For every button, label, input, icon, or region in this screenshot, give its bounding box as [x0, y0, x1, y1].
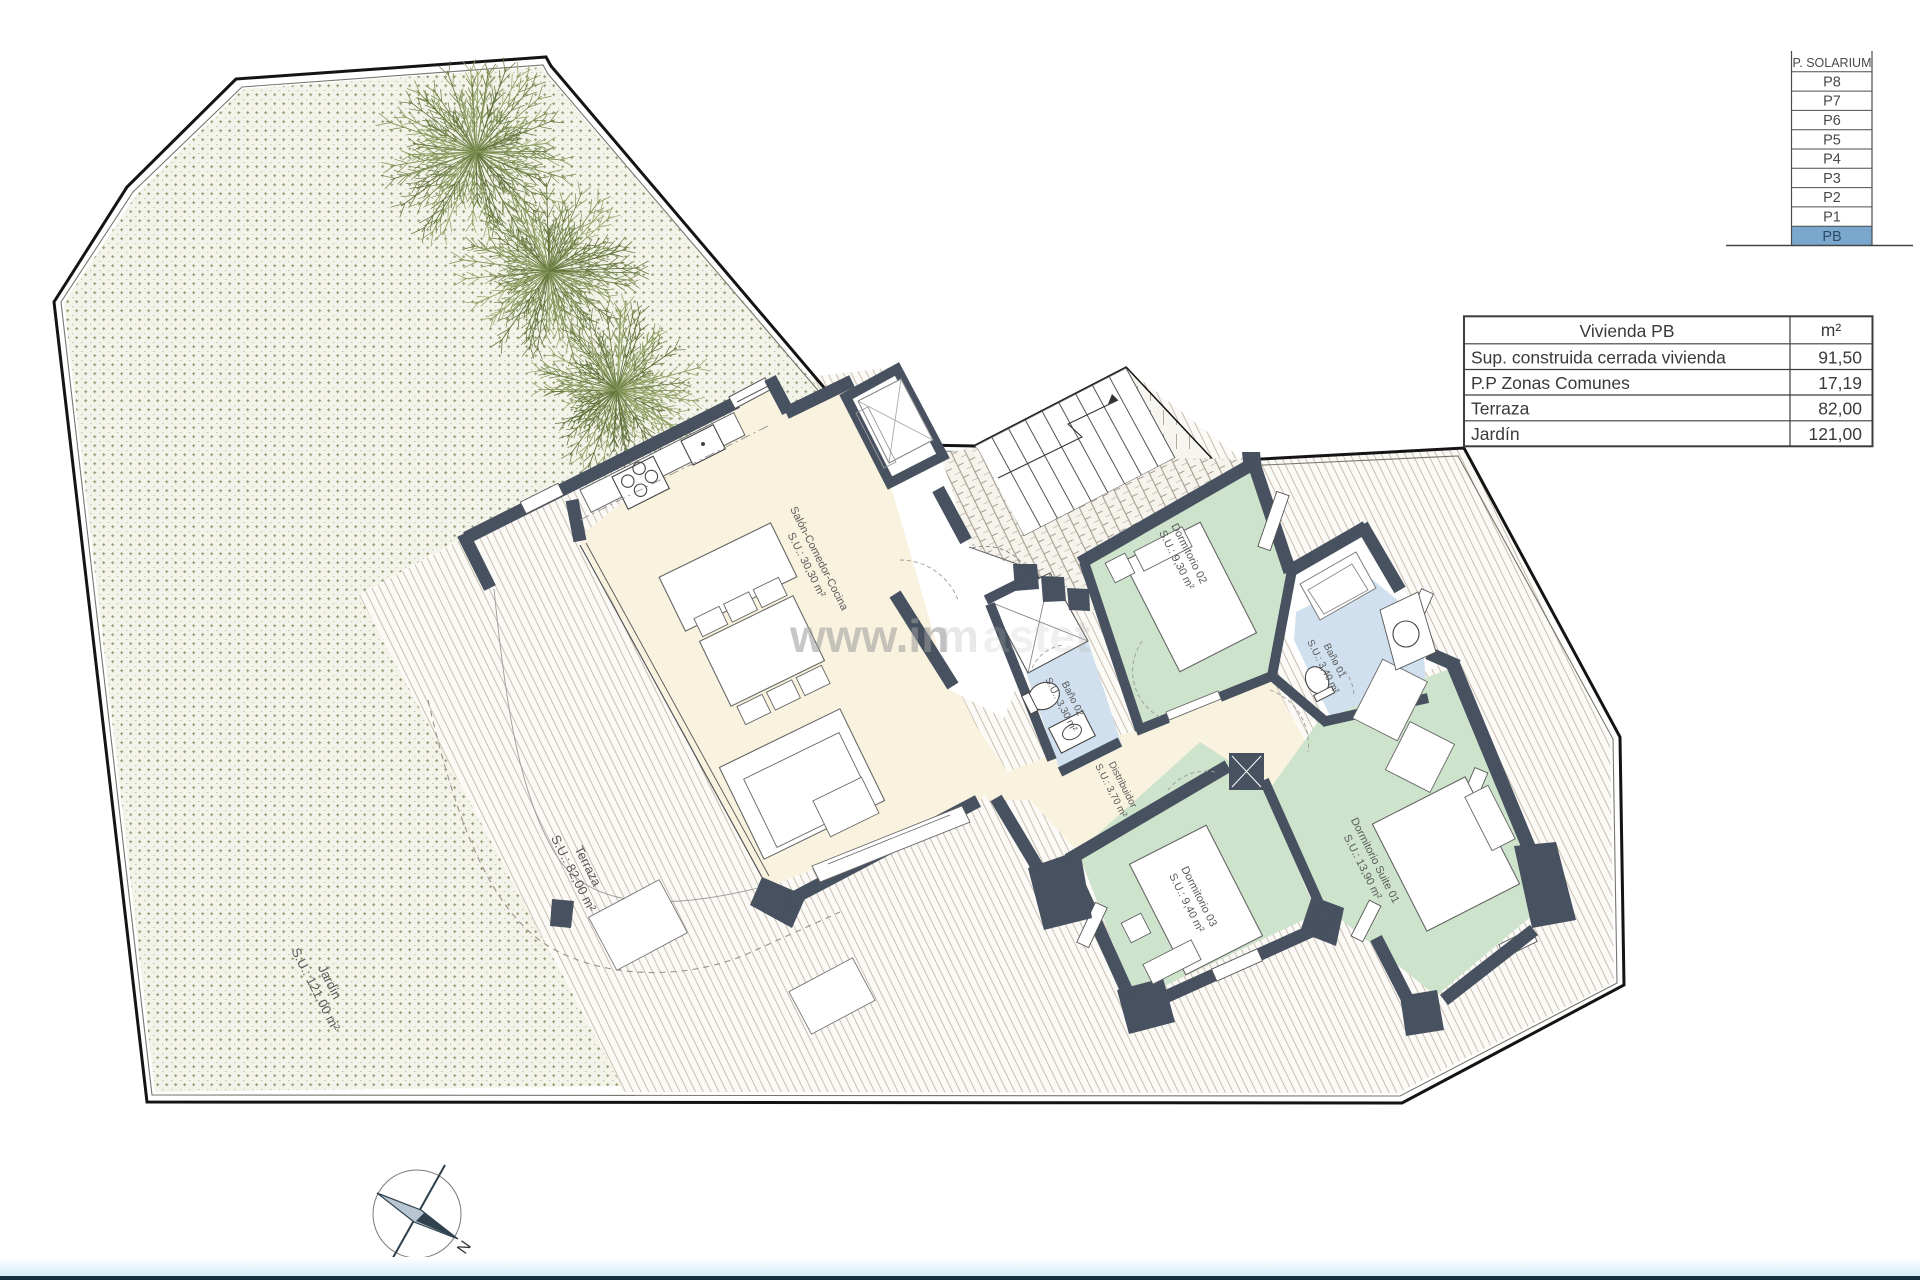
svg-text:Sup. construida cerrada vivien: Sup. construida cerrada vivienda: [1471, 348, 1726, 368]
svg-text:P1: P1: [1823, 210, 1841, 226]
svg-text:P.P Zonas Comunes: P.P Zonas Comunes: [1471, 373, 1630, 393]
svg-text:m: m: [938, 610, 979, 662]
svg-text:Terraza: Terraza: [1471, 399, 1530, 419]
svg-text:Vivienda PB: Vivienda PB: [1579, 321, 1674, 341]
svg-text:P8: P8: [1823, 74, 1841, 90]
svg-text:m²: m²: [1821, 320, 1842, 340]
svg-text:P7: P7: [1823, 94, 1841, 110]
svg-text:Jardín: Jardín: [1471, 424, 1520, 444]
svg-text:17,19: 17,19: [1818, 373, 1862, 393]
svg-text:P3: P3: [1823, 171, 1841, 187]
svg-text:82,00: 82,00: [1818, 399, 1862, 419]
svg-text:www.in: www.in: [789, 610, 949, 662]
svg-text:121,00: 121,00: [1808, 424, 1862, 444]
svg-text:P4: P4: [1823, 152, 1841, 168]
svg-text:P. SOLARIUM: P. SOLARIUM: [1793, 56, 1872, 70]
svg-text:91,50: 91,50: [1818, 348, 1862, 368]
svg-text:aste: aste: [983, 610, 1075, 662]
svg-text:PB: PB: [1822, 229, 1841, 245]
svg-text:P2: P2: [1823, 190, 1841, 206]
svg-text:t: t: [1075, 610, 1090, 662]
svg-text:P5: P5: [1823, 132, 1841, 148]
svg-text:P6: P6: [1823, 113, 1841, 129]
